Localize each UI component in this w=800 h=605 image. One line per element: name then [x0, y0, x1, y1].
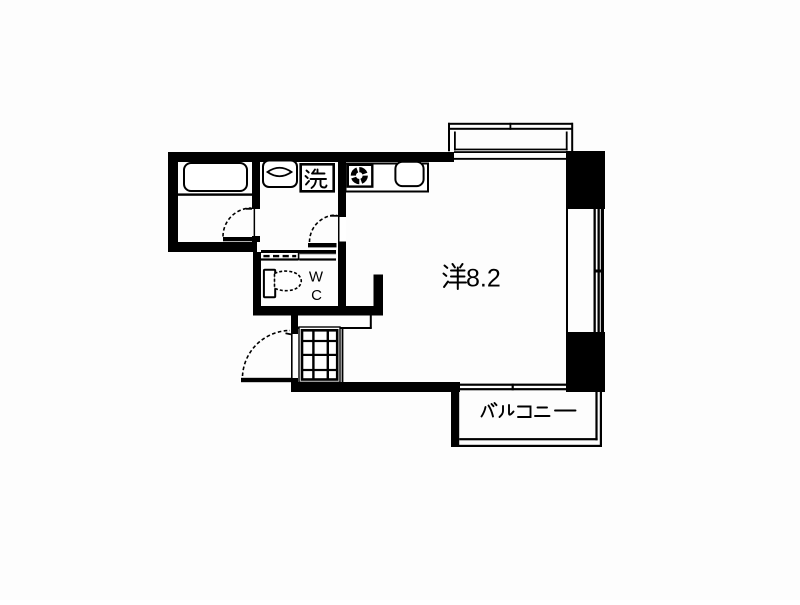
svg-text:8.2: 8.2: [466, 265, 501, 293]
svg-text:W: W: [309, 269, 324, 286]
svg-text:C: C: [311, 287, 322, 304]
